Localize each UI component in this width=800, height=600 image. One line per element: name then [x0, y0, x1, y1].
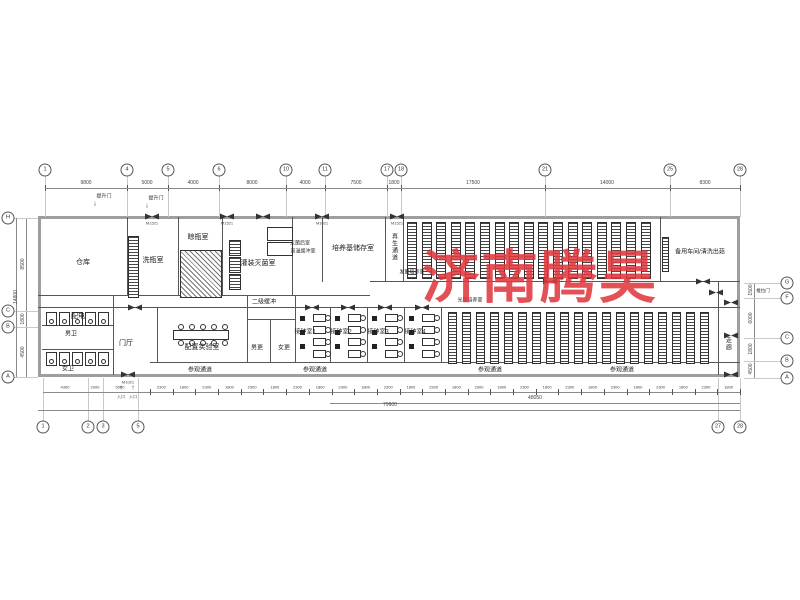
dim-tick: [332, 389, 333, 395]
dim-value-left: 4500: [20, 346, 26, 357]
culture-rack-column: [476, 312, 485, 364]
dim-tick: [422, 389, 423, 395]
dim-tick: [513, 389, 514, 395]
toilet-fixture: [88, 359, 93, 364]
door-swing-icon: [724, 372, 738, 379]
clean-bench-stool: [397, 351, 403, 357]
dim-value-bottom: 2300: [202, 385, 211, 390]
partition-wall: [157, 307, 158, 363]
note-entrance-2: 入口: [129, 394, 137, 400]
dim-value-bottom: 1800: [633, 385, 642, 390]
clean-bench-stool: [434, 351, 440, 357]
dryer-machine: [180, 250, 222, 298]
grid-bubble-right: G: [781, 277, 794, 290]
door-swing-icon: [145, 214, 159, 221]
dim-tick: [604, 389, 605, 395]
partition-wall: [42, 349, 113, 350]
partition-wall: [660, 217, 661, 282]
dim-tick: [173, 389, 174, 395]
entrance-arrow-icon: ↑: [131, 385, 135, 392]
dim-value-bottom: 1800: [225, 385, 234, 390]
toilet-fixture: [88, 319, 93, 324]
partition-wall: [247, 295, 248, 363]
door-swing-icon: [378, 305, 392, 312]
dim-value-top: 8000: [246, 180, 257, 186]
dim-value-bottom: 2300: [429, 385, 438, 390]
culture-rack-column: [462, 312, 471, 364]
partition-wall: [178, 217, 179, 296]
note-lift-door-1: 提升门: [96, 193, 111, 200]
culture-rack-column: [616, 312, 625, 364]
clean-bench-stool: [325, 315, 331, 321]
culture-rack-column: [532, 312, 541, 364]
culture-rack-column: [574, 312, 583, 364]
dim-value-bottom: 2300: [702, 385, 711, 390]
corridor-label-visit-2: 参观通道: [303, 365, 327, 374]
grid-stem: [545, 176, 546, 217]
corridor-label-visit-4: 参观通道: [610, 365, 634, 374]
exterior-wall: [737, 216, 740, 377]
dim-value-top: 17500: [466, 180, 480, 186]
partition-wall: [441, 307, 442, 363]
culture-rack-column: [588, 312, 597, 364]
door-swing-icon: [341, 305, 355, 312]
door-swing-icon: [220, 214, 234, 221]
room-label-spare-workshop: 备用车间/清洗出菇: [675, 247, 725, 256]
culture-rack-column: [662, 237, 669, 272]
culture-rack-column: [686, 312, 695, 364]
dim-value-bottom: 1800: [316, 385, 325, 390]
grid-stem: [325, 176, 326, 217]
room-label-womens-change: 女更: [278, 343, 290, 352]
grid-stem: [718, 378, 719, 421]
grid-bubble-right: F: [781, 292, 794, 305]
dim-value-bottom: 1800: [679, 385, 688, 390]
grid-stem: [744, 338, 781, 339]
dim-value-left: 8500: [20, 258, 26, 269]
door-code: M1521: [391, 221, 403, 226]
dim-value-bottom: 1800: [361, 385, 370, 390]
grid-stem: [14, 218, 38, 219]
lab-stool: [222, 340, 228, 346]
dim-total: 79900: [383, 402, 397, 408]
inoculation-cabinet: [335, 316, 340, 321]
dim-value-bottom: 1800: [588, 385, 597, 390]
dim-value-bottom: 1800: [452, 385, 461, 390]
culture-rack-column: [644, 312, 653, 364]
room-label-lobby: 门厅: [119, 338, 133, 348]
grid-bubble-top: 21: [539, 164, 552, 177]
grid-stem: [744, 298, 781, 299]
clean-bench-stool: [360, 327, 366, 333]
grid-stem: [744, 378, 781, 379]
exterior-wall: [38, 216, 41, 377]
dim-value-bottom: 1800: [724, 385, 733, 390]
clean-bench-stool: [325, 351, 331, 357]
toilet-fixture: [49, 319, 54, 324]
dim-tick: [195, 389, 196, 395]
room-label-inoculation-2: 接种室2: [330, 327, 351, 336]
clean-bench-stool: [434, 339, 440, 345]
culture-rack-column: [448, 312, 457, 364]
watermark-text: 济南腾昊: [422, 250, 658, 307]
door-swing-icon: [390, 214, 404, 221]
dim-tick: [309, 389, 310, 395]
arrow-down-icon: ↓: [145, 203, 149, 210]
dim-value-top: 4000: [299, 180, 310, 186]
clean-bench-stool: [360, 351, 366, 357]
culture-rack-column: [672, 312, 681, 364]
grid-bubble-top: 1: [39, 164, 52, 177]
clean-bench-stool: [397, 339, 403, 345]
dim-value-bottom: 2300: [611, 385, 620, 390]
arrow-down-icon: ↓: [93, 201, 97, 208]
dim-tick: [558, 389, 559, 395]
grid-stem: [138, 378, 139, 421]
room-label-prep-lab: 配置实验室: [185, 342, 220, 352]
dim-value-bottom: 2300: [656, 385, 665, 390]
dim-value-left: 1800: [20, 313, 26, 324]
grid-bubble-top: 11: [319, 164, 332, 177]
dim-subtotal: 48050: [528, 395, 542, 401]
dim-left-total: 14800: [13, 290, 19, 304]
clean-bench-stool: [434, 327, 440, 333]
dim-tick: [241, 389, 242, 395]
door-swing-icon: [256, 214, 270, 221]
grid-bubble-bottom: 27: [712, 421, 725, 434]
note-post-sterilize: 灭菌后室: [290, 240, 310, 247]
dim-value-bottom: 2300: [293, 385, 302, 390]
grid-stem: [219, 176, 220, 217]
grid-bubble-bottom: 3: [97, 421, 110, 434]
grid-stem: [88, 378, 89, 421]
clean-bench-stool: [360, 315, 366, 321]
inoculation-cabinet: [372, 316, 377, 321]
grid-stem: [43, 378, 44, 421]
dim-tick: [354, 389, 355, 395]
partition-wall: [322, 217, 323, 282]
grid-bubble-top: 4: [121, 164, 134, 177]
sterilizer-unit: [229, 257, 241, 273]
dim-value-top: 5000: [141, 180, 152, 186]
room-label-fill-sterilize: 灌装灭菌室: [241, 258, 276, 268]
lab-stool: [211, 324, 217, 330]
grid-bubble-top: 28: [734, 164, 747, 177]
door-swing-icon: [121, 372, 135, 379]
dim-tick: [717, 389, 718, 395]
room-label-mens-wc: 男卫: [65, 329, 77, 338]
dim-tick: [400, 389, 401, 395]
partition-wall: [247, 319, 295, 320]
toilet-fixture: [49, 359, 54, 364]
grid-stem: [45, 176, 46, 217]
dim-value-bottom: 2300: [520, 385, 529, 390]
dim-tick: [490, 389, 491, 395]
culture-rack-column: [602, 312, 611, 364]
toilet-fixture: [62, 319, 67, 324]
dim-value-top: 9800: [80, 180, 91, 186]
inoculation-cabinet: [409, 344, 414, 349]
dim-value-bottom: 1800: [497, 385, 506, 390]
clean-bench-stool: [360, 339, 366, 345]
note-sliding-door: 推拉门: [756, 288, 770, 294]
door-code: M1521: [146, 221, 158, 226]
grid-bubble-left: H: [2, 212, 15, 225]
dim-value-bottom: 2300: [248, 385, 257, 390]
lab-bench: [173, 330, 229, 340]
dim-line-bottom-left: [43, 392, 150, 393]
room-label-medium-storage: 培养基储存室: [332, 243, 374, 253]
dim-tick: [740, 389, 741, 395]
dim-value-top: 1800: [388, 180, 399, 186]
grid-bubble-bottom: 5: [132, 421, 145, 434]
note-entrance-1: 入口: [117, 394, 125, 400]
dim-value-bottom: 2300: [157, 385, 166, 390]
door-swing-icon: [724, 300, 738, 307]
dim-value-bottom: 1800: [543, 385, 552, 390]
grid-bubble-top: 6: [213, 164, 226, 177]
grid-bubble-top: 18: [395, 164, 408, 177]
grid-stem: [744, 361, 781, 362]
dim-line-left: [26, 218, 27, 377]
dim-value-bottom: 1800: [270, 385, 279, 390]
corridor-label-visit-1: 参观通道: [188, 365, 212, 374]
toilet-fixture: [101, 359, 106, 364]
dim-line-total: [38, 410, 740, 411]
dim-value-top: 7500: [350, 180, 361, 186]
grid-bubble-right: B: [781, 355, 794, 368]
dim-value-right: 1800: [748, 343, 754, 354]
inoculation-cabinet: [372, 344, 377, 349]
door-swing-icon: [709, 290, 723, 297]
room-label-inoculation-4: 接种室4: [404, 327, 425, 336]
exterior-wall: [38, 216, 740, 219]
dim-value-bottom: 2300: [338, 385, 347, 390]
dim-value-top: 14000: [600, 180, 614, 186]
dim-value-bottom: 1800: [407, 385, 416, 390]
grid-bubble-bottom: 28: [734, 421, 747, 434]
grid-bubble-top: 10: [280, 164, 293, 177]
dim-tick: [286, 389, 287, 395]
dim-value-bottom-left: 2000: [91, 385, 100, 390]
room-label-mens-change: 男更: [251, 343, 263, 352]
dim-tick: [445, 389, 446, 395]
grid-stem: [740, 176, 741, 217]
dim-tick: [377, 389, 378, 395]
dim-value-top: 8300: [699, 180, 710, 186]
door-swing-icon: [128, 305, 142, 312]
lab-stool: [222, 324, 228, 330]
grid-stem: [168, 176, 169, 217]
grid-bubble-left: C: [2, 305, 15, 318]
grid-stem: [14, 327, 38, 328]
door-swing-icon: [724, 333, 738, 340]
grid-stem: [14, 377, 38, 378]
room-label-bottle-dry: 晾瓶室: [188, 232, 209, 242]
culture-rack-column: [700, 312, 709, 364]
grid-bubble-top: 5: [162, 164, 175, 177]
dim-tick: [672, 389, 673, 395]
culture-rack-column: [518, 312, 527, 364]
partition-wall: [270, 319, 271, 363]
room-label-warehouse: 仓库: [76, 257, 90, 267]
partition-wall: [385, 217, 386, 282]
grid-stem: [286, 176, 287, 217]
dim-tick: [263, 389, 264, 395]
room-label-power: 配电: [71, 311, 85, 321]
sterilizer-unit: [229, 240, 241, 256]
grid-stem: [401, 176, 402, 217]
corridor-label-visit-3: 参观通道: [478, 365, 502, 374]
grid-bubble-top: 25: [664, 164, 677, 177]
room-label-womens-wc: 女卫: [62, 364, 74, 373]
clean-bench-stool: [434, 315, 440, 321]
toilet-fixture: [75, 359, 80, 364]
culture-rack-column: [560, 312, 569, 364]
dim-tick: [627, 389, 628, 395]
dim-tick: [150, 389, 151, 395]
room-label-inoculation-1: 接种室1: [294, 327, 315, 336]
room-label-inoculation-3: 接种室3: [367, 327, 388, 336]
dim-tick: [695, 389, 696, 395]
room-label-secondary-buffer: 二级缓冲: [252, 297, 276, 306]
lab-stool: [178, 324, 184, 330]
dim-value-right: 6000: [748, 312, 754, 323]
culture-rack-column: [658, 312, 667, 364]
dim-value-top: 4000: [187, 180, 198, 186]
grid-stem: [127, 176, 128, 217]
door-swing-icon: [305, 305, 319, 312]
grid-stem: [670, 176, 671, 217]
grid-bubble-left: B: [2, 321, 15, 334]
dim-value-bottom-left: 5000: [116, 385, 125, 390]
culture-rack-column: [630, 312, 639, 364]
lab-stool: [178, 340, 184, 346]
lab-stool: [189, 324, 195, 330]
note-high-temp-buffer: 高温缓冲室: [290, 248, 315, 255]
room-label-regen-corridor: 再生通道: [390, 233, 399, 261]
dim-line-top: [45, 188, 740, 189]
exterior-wall: [38, 374, 740, 377]
sterilizer-unit: [229, 274, 241, 290]
door-swing-icon: [696, 279, 710, 286]
inoculation-cabinet: [409, 316, 414, 321]
culture-rack-column: [546, 312, 555, 364]
room-label-bottle-wash: 洗瓶室: [143, 255, 164, 265]
inoculation-cabinet: [300, 316, 305, 321]
lab-stool: [200, 324, 206, 330]
grid-stem: [103, 378, 104, 421]
grid-bubble-bottom: 1: [37, 421, 50, 434]
grid-bubble-bottom: 2: [82, 421, 95, 434]
partition-wall: [222, 217, 223, 296]
grid-stem: [14, 311, 38, 312]
culture-rack-column: [490, 312, 499, 364]
inoculation-cabinet: [300, 344, 305, 349]
grid-bubble-top: 17: [381, 164, 394, 177]
inoculation-cabinet: [335, 344, 340, 349]
grid-bubble-left: A: [2, 371, 15, 384]
dim-value-right: 1500: [748, 284, 754, 295]
clean-bench-stool: [325, 339, 331, 345]
grid-stem: [740, 378, 741, 421]
floor-plan-canvas: 济南腾昊 仓库 洗瓶室 晾瓶室 灌装灭菌室 培养基储存室 再生通道 发菌培养室 …: [0, 0, 800, 600]
bottle-rack-ladder: [128, 236, 139, 298]
note-lift-door-2: 提升门: [148, 195, 163, 202]
dim-value-right: 4500: [748, 363, 754, 374]
dim-value-bottom: 1800: [180, 385, 189, 390]
toilet-fixture: [101, 319, 106, 324]
dim-tick: [581, 389, 582, 395]
dim-tick: [218, 389, 219, 395]
clean-bench-stool: [397, 315, 403, 321]
grid-bubble-right: A: [781, 372, 794, 385]
dim-value-bottom-left: 4300: [61, 385, 70, 390]
dim-value-bottom: 2300: [565, 385, 574, 390]
room-label-spawn-culture: 发菌培养室: [399, 269, 424, 276]
dim-tick: [740, 185, 741, 191]
culture-rack-column: [504, 312, 513, 364]
door-swing-icon: [315, 214, 329, 221]
grid-bubble-right: C: [781, 332, 794, 345]
dim-value-bottom: 2300: [384, 385, 393, 390]
dim-tick: [468, 389, 469, 395]
clean-bench-stool: [397, 327, 403, 333]
dim-value-bottom: 2300: [475, 385, 484, 390]
dim-tick: [649, 389, 650, 395]
partition-wall: [113, 295, 114, 375]
